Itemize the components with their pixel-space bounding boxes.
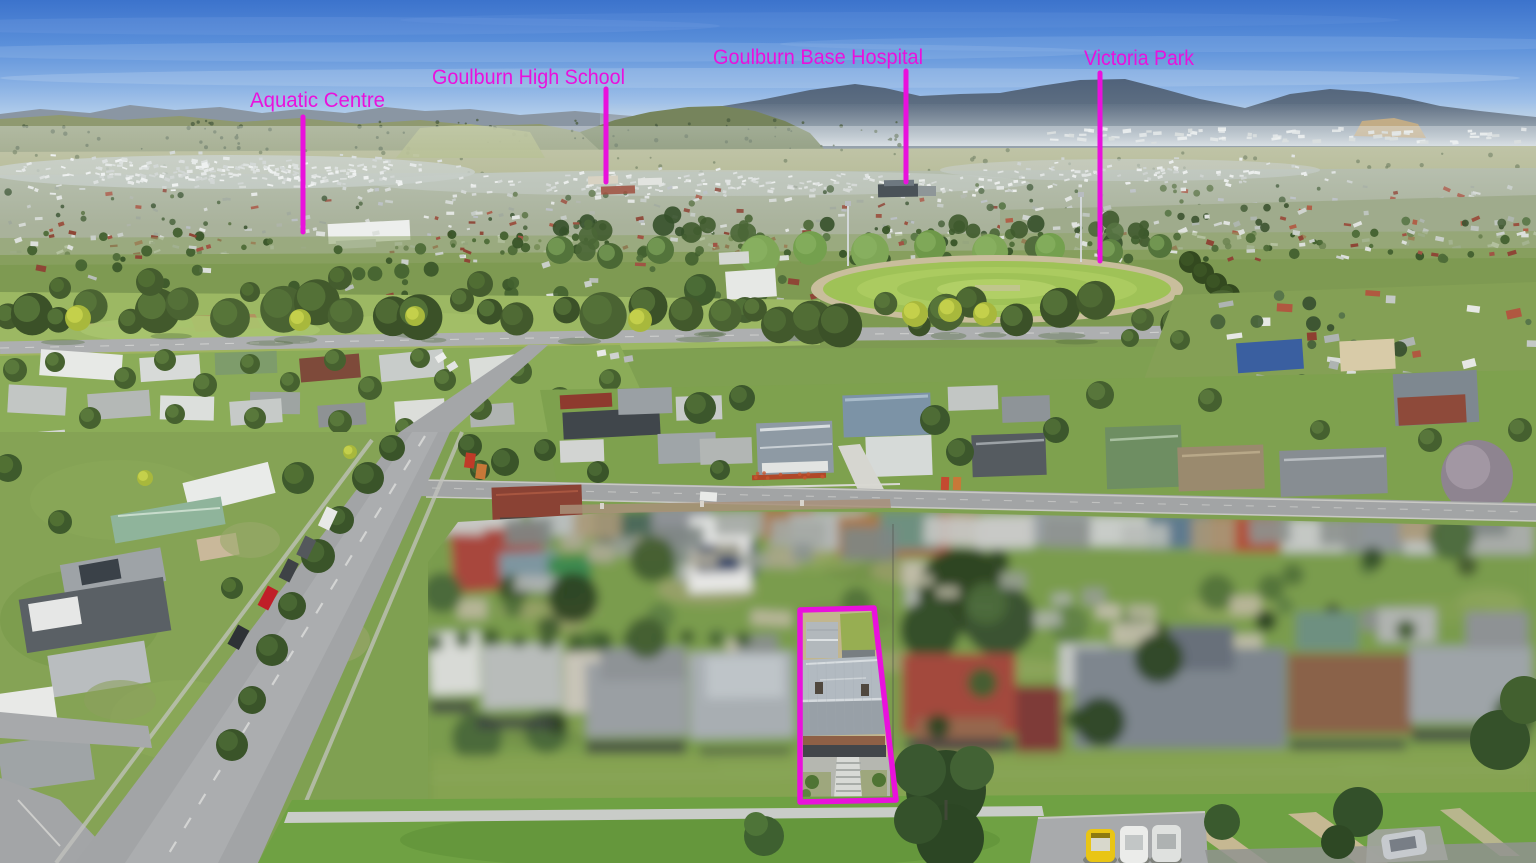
- svg-text:Goulburn Base Hospital: Goulburn Base Hospital: [713, 46, 923, 69]
- svg-text:Victoria Park: Victoria Park: [1084, 47, 1194, 70]
- svg-text:Goulburn High School: Goulburn High School: [432, 66, 625, 89]
- svg-text:Aquatic Centre: Aquatic Centre: [250, 89, 385, 112]
